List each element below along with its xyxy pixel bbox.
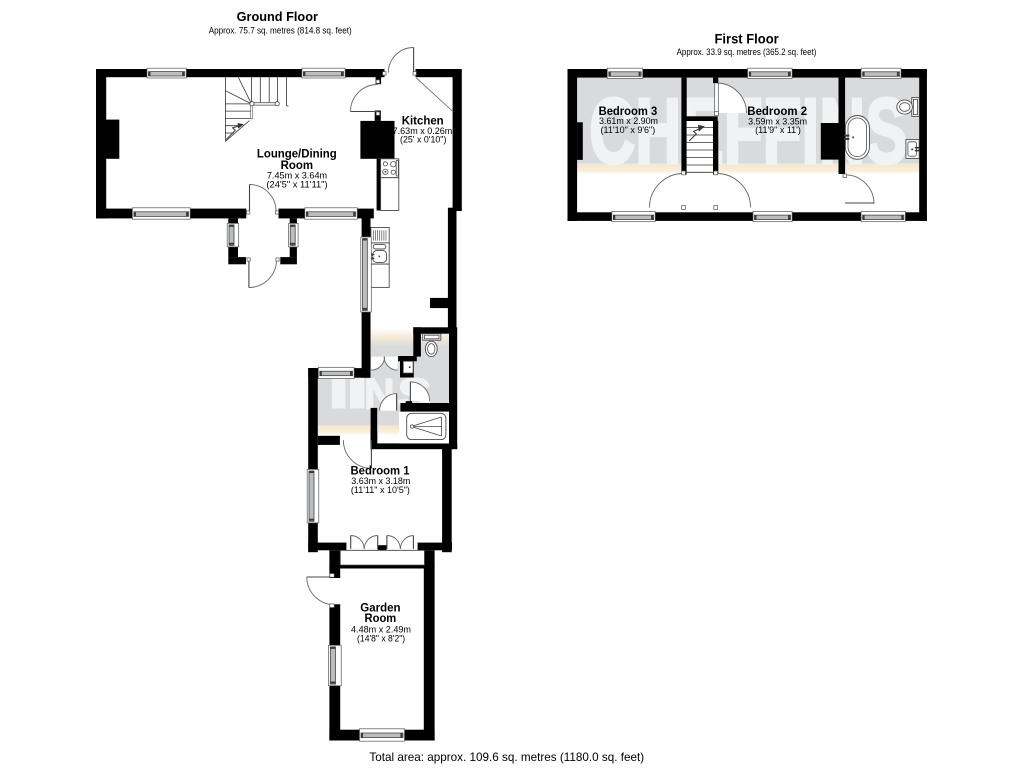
svg-text:(25' x 0'10"): (25' x 0'10") <box>400 135 446 146</box>
svg-text:Room: Room <box>365 611 397 625</box>
svg-text:First Floor: First Floor <box>715 32 780 48</box>
svg-text:(11'10" x 9'6"): (11'10" x 9'6") <box>601 125 656 136</box>
svg-text:Approx. 75.7 sq. metres (814.8: Approx. 75.7 sq. metres (814.8 sq. feet) <box>209 25 352 35</box>
svg-text:(24'5" x 11'11"): (24'5" x 11'11") <box>266 180 327 191</box>
svg-text:Total area: approx. 109.6 sq.: Total area: approx. 109.6 sq. metres (11… <box>369 750 644 764</box>
svg-text:(11'9" x 11'): (11'9" x 11') <box>755 125 801 136</box>
svg-text:(11'11" x 10'5"): (11'11" x 10'5") <box>351 485 410 496</box>
svg-text:Approx. 33.9 sq. metres (365.2: Approx. 33.9 sq. metres (365.2 sq. feet) <box>677 47 817 57</box>
svg-text:Ground Floor: Ground Floor <box>237 9 318 24</box>
svg-text:(14'8" x 8'2"): (14'8" x 8'2") <box>357 633 405 644</box>
